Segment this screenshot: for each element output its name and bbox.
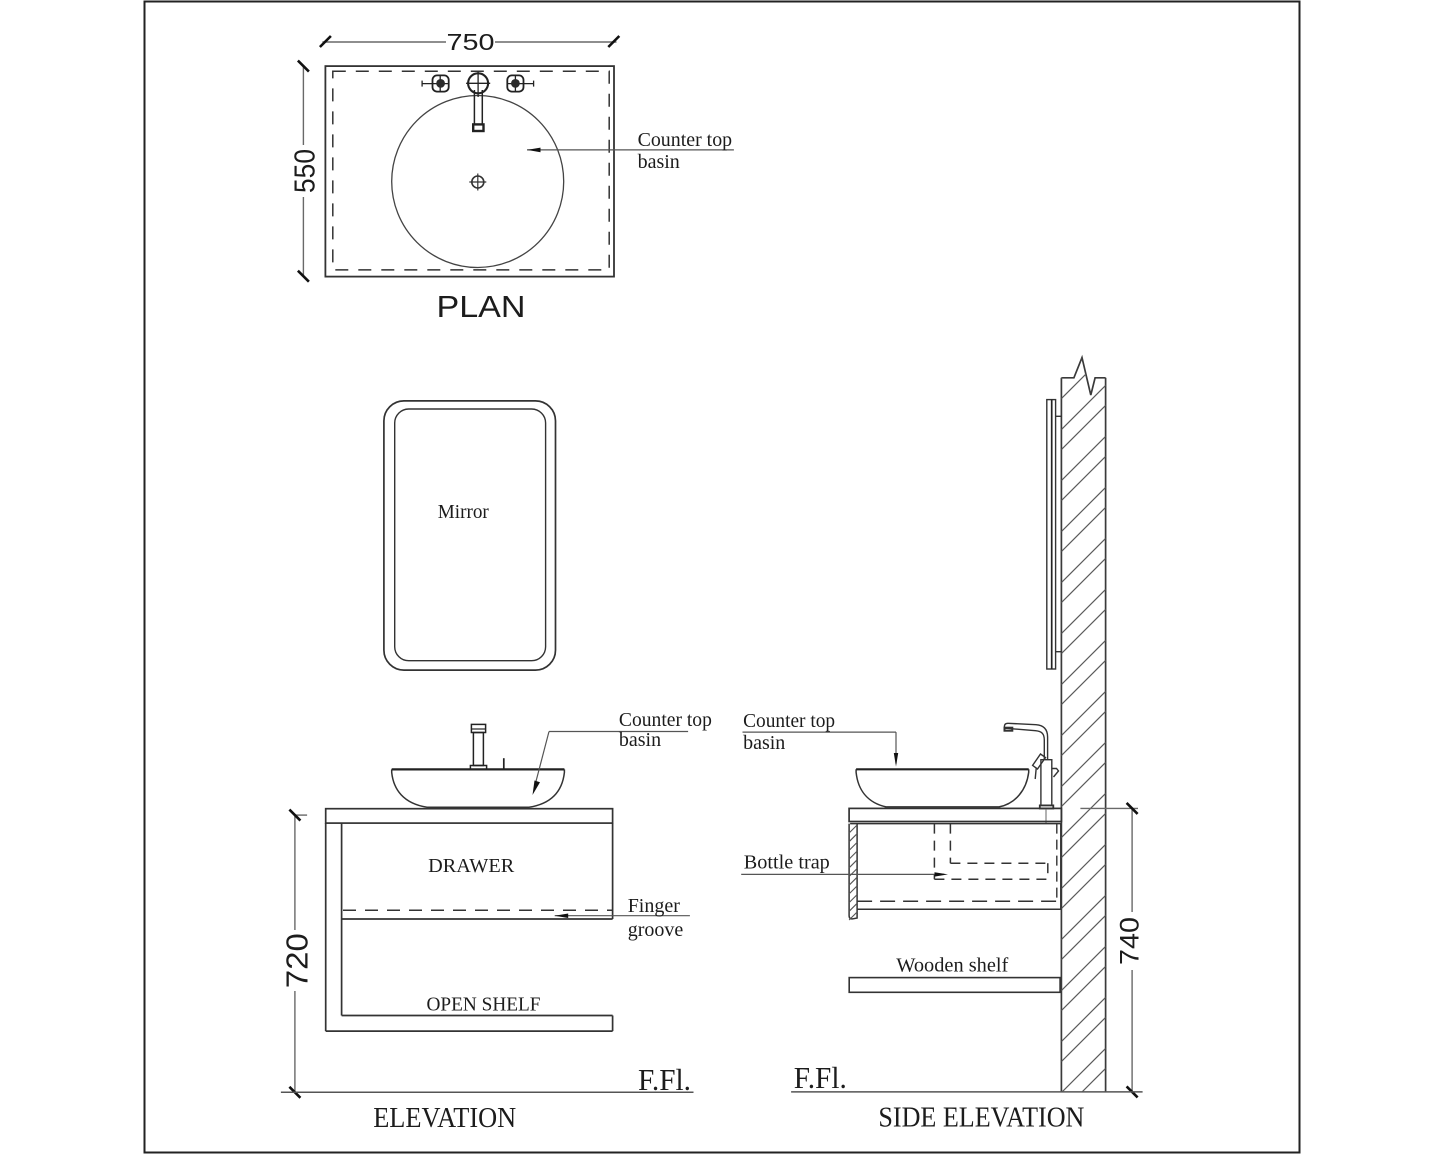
svg-text:720: 720 [279,933,314,988]
svg-text:F.Fl.: F.Fl. [794,1060,847,1095]
svg-text:Counter top: Counter top [619,709,712,731]
svg-text:PLAN: PLAN [437,289,526,324]
svg-text:groove: groove [628,919,684,941]
svg-text:Mirror: Mirror [438,501,489,523]
svg-text:DRAWER: DRAWER [428,855,515,877]
svg-text:F.Fl.: F.Fl. [638,1062,691,1097]
svg-text:Counter top: Counter top [743,710,835,732]
svg-text:Finger: Finger [628,895,681,917]
svg-text:basin: basin [619,729,661,751]
svg-text:550: 550 [289,149,321,193]
svg-text:Wooden shelf: Wooden shelf [896,955,1008,977]
svg-text:OPEN SHELF: OPEN SHELF [427,994,541,1016]
svg-text:basin: basin [638,151,680,173]
svg-text:740: 740 [1114,917,1144,965]
svg-text:basin: basin [743,732,785,754]
svg-text:SIDE ELEVATION: SIDE ELEVATION [878,1103,1084,1134]
svg-text:750: 750 [447,29,495,55]
svg-text:Counter top: Counter top [638,129,733,151]
svg-text:ELEVATION: ELEVATION [373,1103,516,1134]
svg-text:Bottle trap: Bottle trap [744,852,830,874]
